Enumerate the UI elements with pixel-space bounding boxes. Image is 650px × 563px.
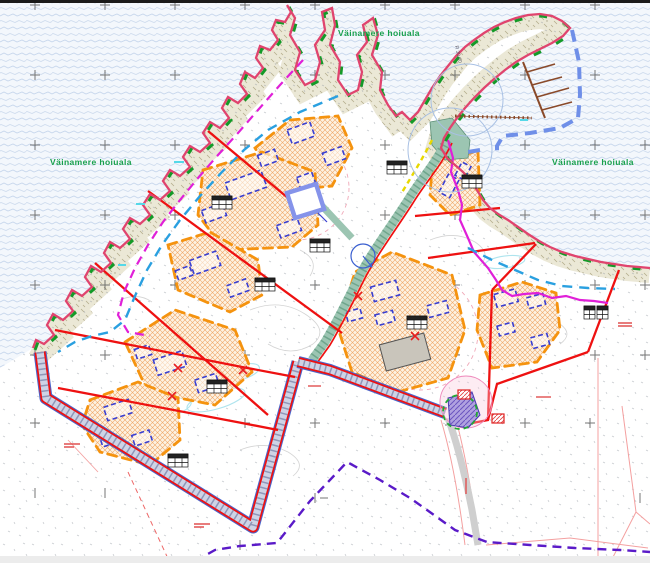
label-hoiuala-top: Väinamere hoiuala [338, 28, 420, 38]
site-plan-map: Väinamere hoiuala Väinamere hoiuala Väin… [0, 0, 650, 563]
label-hoiuala-west: Väinamere hoiuala [50, 157, 132, 167]
label-hoiuala-right: Väinamere hoiuala [552, 157, 634, 167]
bottom-strip [0, 556, 650, 563]
utility-parcel [440, 376, 492, 429]
map-viewport: Väinamere hoiuala Väinamere hoiuala Väin… [0, 0, 650, 563]
window-top-bar [0, 0, 650, 3]
